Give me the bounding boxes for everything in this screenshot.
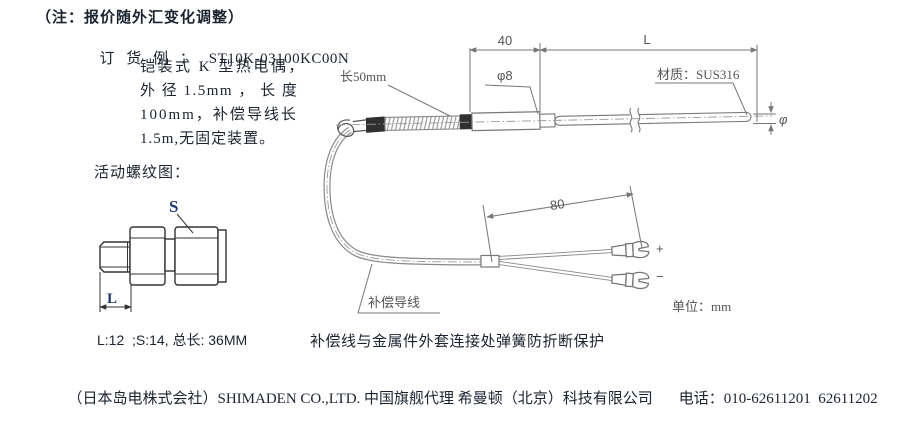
compensation-cable-label: 补偿导线: [368, 295, 420, 310]
order-desc-line5: 1.5m,无固定装置。: [140, 127, 275, 148]
tip-diameter-dim: [753, 102, 776, 135]
fork-terminal-minus: [612, 271, 649, 289]
spring-protection-caption: 补偿线与金属件外套连接处弹簧防折断保护: [310, 330, 605, 351]
footer: （日本岛电株式会社）SHIMADEN CO.,LTD. 中国旗舰代理 希曼顿（北…: [60, 370, 878, 408]
minus-label: −: [656, 269, 664, 284]
dia8-label: φ8: [497, 68, 513, 83]
dim-l-label: L: [643, 32, 650, 47]
catalog-page: { "colors": { "text": "#1c2430", "accent…: [0, 0, 904, 434]
dia8-leader: [485, 85, 538, 114]
sleeve-length-label: 长50mm: [340, 69, 386, 84]
l-dim-label: L: [107, 291, 117, 307]
material-leader: [733, 83, 747, 115]
sheath-assembly: [336, 105, 772, 138]
dia-symbol-label: φ: [779, 112, 788, 127]
plus-label: +: [656, 241, 664, 256]
probe-tube: [555, 112, 751, 125]
thread-dimensions-text: L:12 ;S:14, 总长: 36MM: [97, 330, 247, 350]
thread-fitting-drawing: S L: [85, 190, 235, 318]
cable-split: [481, 251, 612, 279]
unit-label: 单位：mm: [672, 299, 731, 314]
exchange-rate-note: （注：报价随外汇变化调整）: [36, 6, 244, 27]
fork-terminal-plus: [612, 241, 649, 259]
order-desc-line2: 铠装式 K 型热电偶，: [140, 55, 306, 76]
fitting-body: [100, 227, 226, 285]
dim-80-label: 80: [549, 196, 566, 213]
compensation-cable: [327, 130, 482, 262]
thread-figure-title: 活动螺纹图：: [94, 161, 190, 182]
spring-protection-50mm: [385, 116, 460, 131]
split-ferrule: [481, 256, 499, 268]
sleeve-length-leader: [388, 85, 450, 116]
footer-phone: 电话：010-62611201 62611202: [679, 391, 878, 407]
footer-company: （日本岛电株式会社）SHIMADEN CO.,LTD. 中国旗舰代理 希曼顿（北…: [68, 391, 653, 407]
order-desc-line4: 100mm，补偿导线长: [140, 103, 298, 124]
material-label: 材质：SUS316: [657, 67, 740, 82]
s-dim-label: S: [169, 197, 178, 216]
order-desc-line3: 外 径 1.5mm ， 长 度: [140, 79, 298, 100]
thermocouple-drawing: 40 L 长50mm φ8 材质：SUS316 φ + − 80 补偿导线 单位…: [320, 24, 800, 324]
crimp-sleeve-right: [460, 114, 472, 129]
dim-40-label: 40: [498, 33, 512, 48]
